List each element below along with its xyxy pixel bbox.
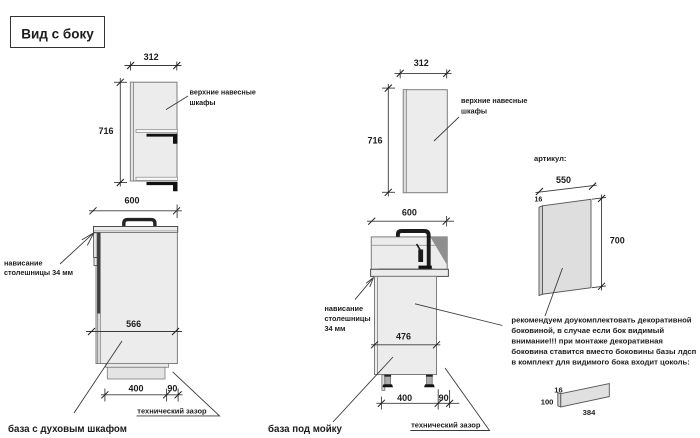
svg-text:технический зазор: технический зазор: [137, 406, 207, 415]
svg-text:рекомендуем доукомплектовать д: рекомендуем доукомплектовать декоративно…: [511, 316, 691, 325]
svg-text:артикул:: артикул:: [534, 154, 566, 163]
svg-text:база под мойку: база под мойку: [268, 424, 342, 435]
svg-text:16: 16: [554, 385, 562, 394]
svg-text:476: 476: [396, 332, 411, 342]
svg-text:столешницы 34 мм: столешницы 34 мм: [4, 268, 73, 277]
svg-text:столешницы: столешницы: [325, 314, 371, 323]
svg-text:312: 312: [144, 52, 159, 62]
svg-text:нависание: нависание: [325, 304, 364, 313]
svg-text:400: 400: [128, 383, 143, 393]
svg-text:716: 716: [367, 136, 382, 146]
svg-text:90: 90: [439, 393, 449, 403]
svg-text:верхние навесные: верхние навесные: [190, 88, 256, 97]
svg-text:384: 384: [583, 408, 596, 417]
svg-text:600: 600: [124, 196, 139, 206]
svg-text:боковина ставится вместо боков: боковина ставится вместо боковины базы л…: [511, 347, 696, 356]
svg-text:шкафы: шкафы: [190, 98, 216, 107]
svg-text:400: 400: [397, 393, 412, 403]
svg-text:в комплект для видимого бока в: в комплект для видимого бока входит цоко…: [511, 358, 689, 367]
svg-text:550: 550: [556, 175, 571, 185]
svg-text:база с духовым шкафом: база с духовым шкафом: [8, 424, 127, 435]
svg-text:боковиной, в случае если бок в: боковиной, в случае если бок видимый: [511, 326, 664, 335]
svg-text:90: 90: [167, 383, 177, 393]
svg-text:700: 700: [610, 236, 625, 246]
svg-text:16: 16: [535, 197, 543, 204]
svg-text:100: 100: [541, 398, 554, 407]
svg-text:312: 312: [414, 58, 429, 68]
svg-text:716: 716: [98, 126, 113, 136]
svg-text:технический зазор: технический зазор: [411, 420, 481, 429]
svg-text:600: 600: [402, 208, 417, 218]
svg-text:34 мм: 34 мм: [325, 324, 346, 333]
svg-text:внимание!!! при монтаже декора: внимание!!! при монтаже декоративная: [511, 337, 663, 346]
svg-text:нависание: нависание: [4, 259, 43, 268]
svg-text:верхние навесные: верхние навесные: [461, 96, 527, 105]
svg-text:шкафы: шкафы: [461, 106, 487, 115]
svg-text:Вид с боку: Вид с боку: [21, 27, 94, 42]
svg-text:566: 566: [126, 319, 141, 329]
